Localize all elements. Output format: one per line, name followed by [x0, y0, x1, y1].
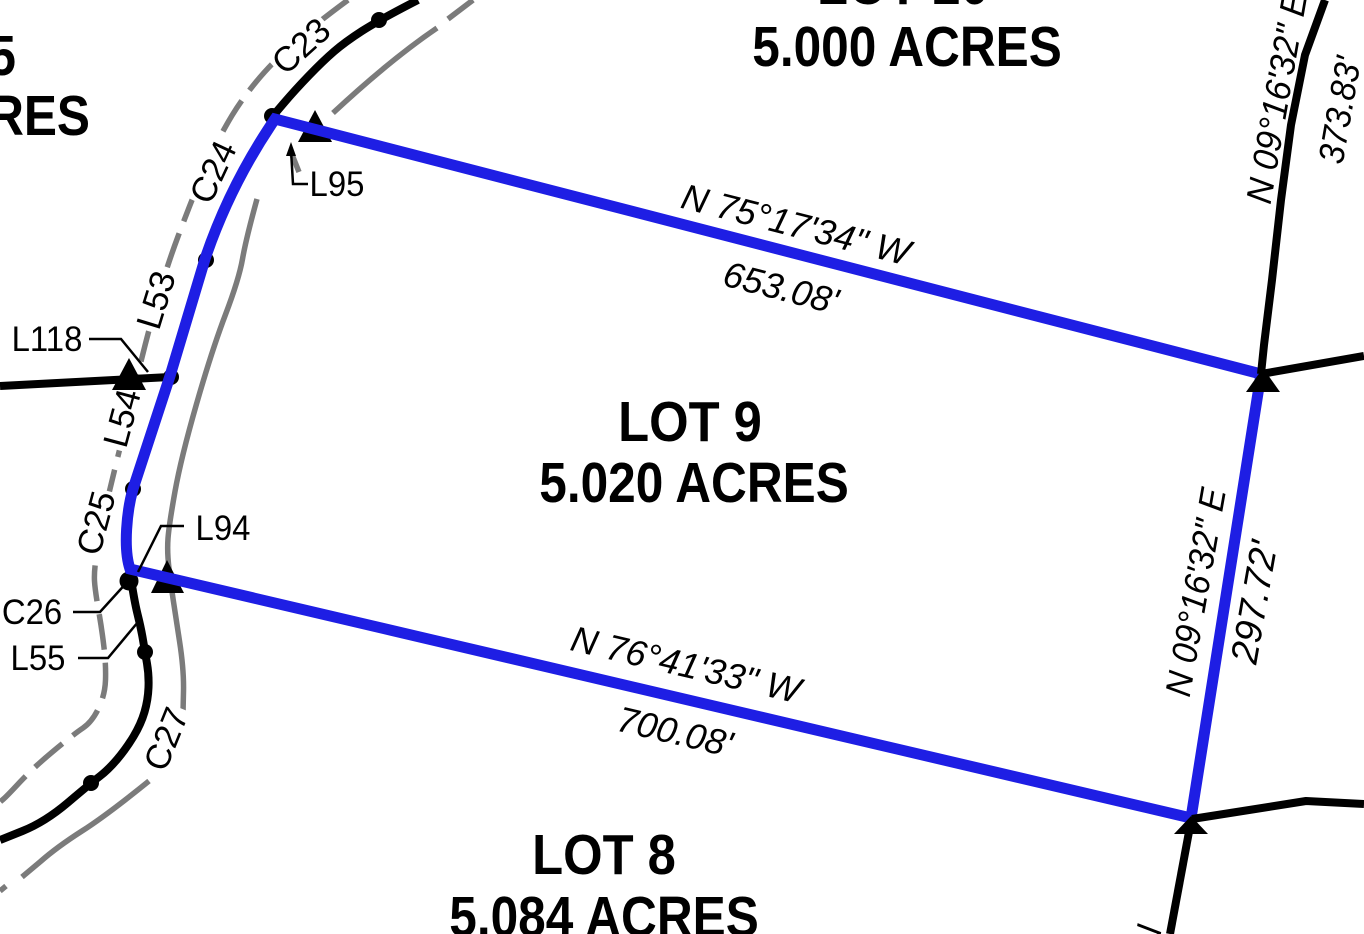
svg-text:ACRES: ACRES	[0, 85, 90, 148]
svg-text:L53: L53	[129, 267, 183, 334]
svg-text:L94: L94	[196, 509, 251, 548]
svg-text:5.000 ACRES: 5.000 ACRES	[752, 16, 1062, 79]
svg-text:C25: C25	[69, 487, 123, 559]
svg-text:5.020 ACRES: 5.020 ACRES	[539, 452, 849, 515]
svg-text:N 09°16'32" E: N 09°16'32" E	[1239, 0, 1315, 207]
svg-text:L54: L54	[96, 385, 149, 452]
svg-text:C26: C26	[2, 593, 62, 632]
svg-text:C23: C23	[264, 10, 338, 82]
svg-text:LOT 9: LOT 9	[618, 390, 762, 453]
svg-text:373.83': 373.83'	[1312, 53, 1364, 167]
svg-text:L55: L55	[11, 639, 66, 678]
svg-text:N: N	[1125, 921, 1170, 934]
svg-text:LOT 5: LOT 5	[0, 25, 16, 88]
svg-text:LOT 20: LOT 20	[817, 0, 989, 17]
svg-text:L95: L95	[310, 165, 365, 204]
svg-text:LOT 8: LOT 8	[532, 823, 676, 886]
svg-text:5.084 ACRES: 5.084 ACRES	[449, 886, 759, 934]
svg-text:L118: L118	[12, 320, 83, 359]
